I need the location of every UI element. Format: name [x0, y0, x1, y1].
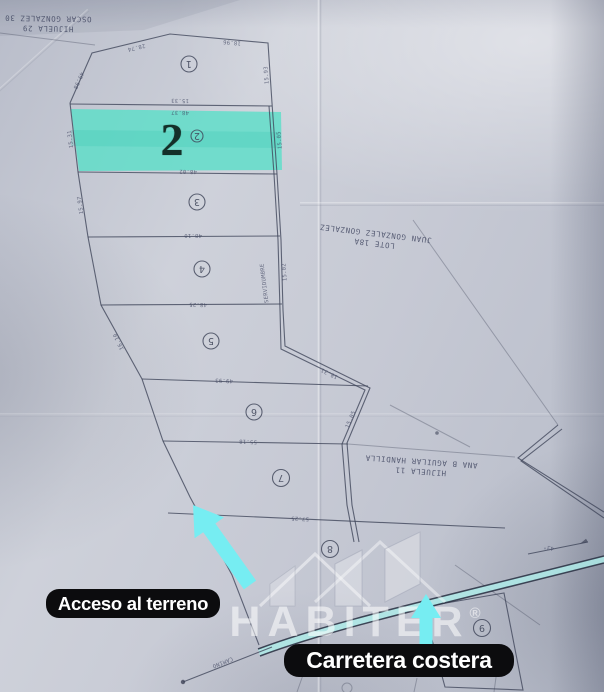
- access-arrow-icon: [193, 505, 256, 589]
- road-label-pill: Carretera costera: [284, 644, 514, 677]
- plat-photo: 123456789 28.7418.9649.9815.9315.3348.37…: [0, 0, 604, 692]
- access-label: Acceso al terreno: [58, 593, 208, 615]
- road-label: Carretera costera: [306, 647, 491, 674]
- access-label-pill: Acceso al terreno: [46, 589, 220, 618]
